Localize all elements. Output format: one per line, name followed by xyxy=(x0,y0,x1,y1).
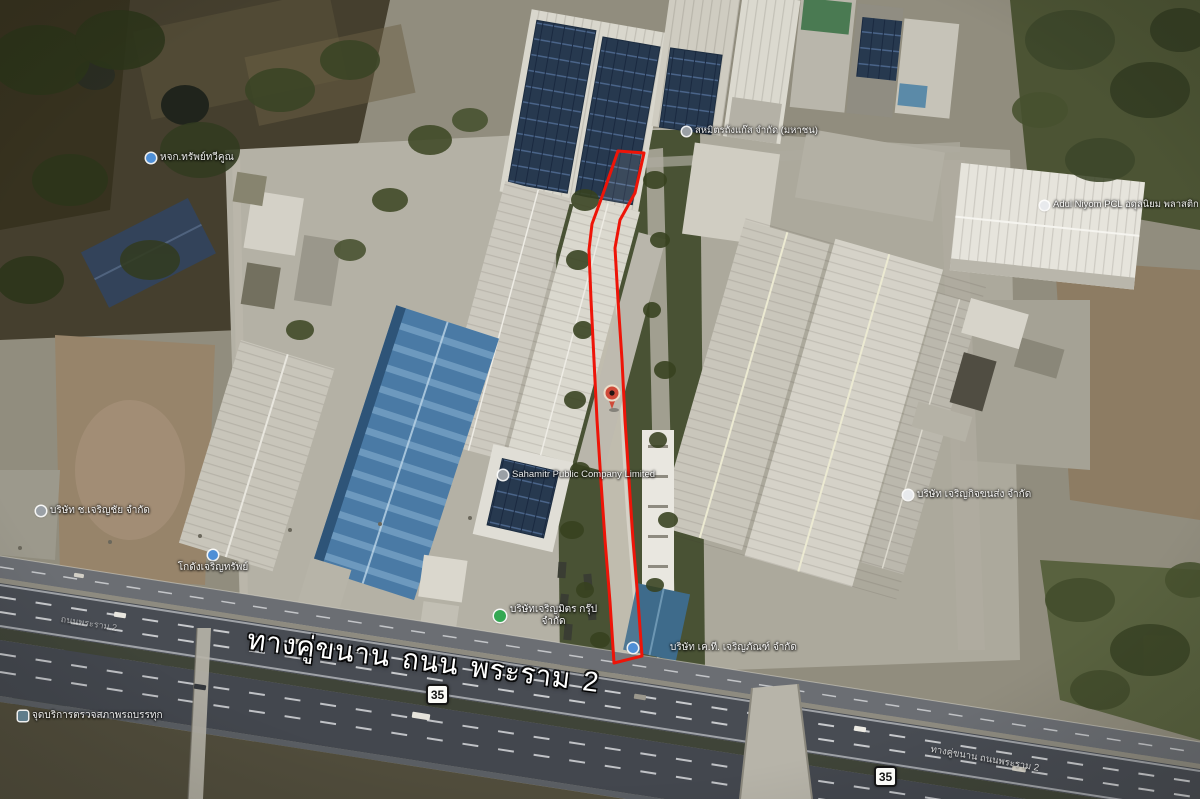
poi-label: สหมิตรถังแก๊ส จำกัด (มหาชน) xyxy=(695,126,818,137)
poi-kt-charoenphan[interactable]: บริษัท เค.ที. เจริญภัณฑ์ จำกัด xyxy=(628,642,797,654)
poi-label: จุดบริการตรวจสภาพรถบรรทุก xyxy=(32,710,163,722)
poi-label: บริษัท เค.ที. เจริญภัณฑ์ จำกัด xyxy=(670,642,797,654)
poi-truck-inspection[interactable]: จุดบริการตรวจสภาพรถบรรทุก xyxy=(18,710,163,722)
poi-icon xyxy=(498,470,508,480)
poi-icon xyxy=(903,490,913,500)
poi-label: โกดังเจริญทรัพย์ xyxy=(178,562,248,574)
poi-label: หจก.ทรัพย์ทวีคูณ xyxy=(160,152,234,164)
poi-icon xyxy=(208,550,218,560)
route-shield-35-left: 35 xyxy=(426,684,449,705)
poi-label-line1: บริษัทเจริญมิตร กรุ๊ป xyxy=(510,604,597,616)
poi-icon xyxy=(682,127,691,136)
poi-label: Adul Niyom PCL อดุลนิยม พลาสติก xyxy=(1053,200,1199,211)
poi-adul-niyom[interactable]: Adul Niyom PCL อดุลนิยม พลาสติก xyxy=(1040,200,1199,211)
poi-label: บริษัท ช.เจริญชัย จำกัด xyxy=(50,505,150,517)
poi-sap-thawikhun[interactable]: หจก.ทรัพย์ทวีคูณ xyxy=(146,152,234,164)
poi-sahamitr-tank[interactable]: สหมิตรถังแก๊ส จำกัด (มหาชน) xyxy=(682,126,818,137)
poi-label: บริษัท เจริญกิจขนส่ง จำกัด xyxy=(917,489,1031,501)
poi-icon xyxy=(146,153,156,163)
poi-icon xyxy=(18,711,28,721)
poi-icon xyxy=(494,610,506,622)
satellite-imagery xyxy=(0,0,1200,799)
poi-label: Sahamitr Public Company Limited xyxy=(512,470,655,481)
poi-godown-charoensap[interactable]: โกดังเจริญทรัพย์ xyxy=(168,550,258,574)
poi-sahamitr-public-co[interactable]: Sahamitr Public Company Limited xyxy=(498,470,655,481)
poi-icon xyxy=(628,643,638,653)
route-shield-number: 35 xyxy=(879,770,892,784)
route-shield-35-right: 35 xyxy=(874,766,897,787)
poi-chor-charoenchai[interactable]: บริษัท ช.เจริญชัย จำกัด xyxy=(36,505,150,517)
poi-label-line2: จำกัด xyxy=(542,616,566,628)
satellite-map-view[interactable]: ทางคู่ขนาน ถนน พระราม 2 ถนนพระราม 2 ทางค… xyxy=(0,0,1200,799)
route-shield-number: 35 xyxy=(431,688,444,702)
poi-icon xyxy=(36,506,46,516)
poi-charoenmit-group[interactable]: บริษัทเจริญมิตร กรุ๊ป จำกัด xyxy=(494,604,597,627)
poi-icon xyxy=(1040,201,1049,210)
poi-charoenkit-transport[interactable]: บริษัท เจริญกิจขนส่ง จำกัด xyxy=(903,489,1031,501)
